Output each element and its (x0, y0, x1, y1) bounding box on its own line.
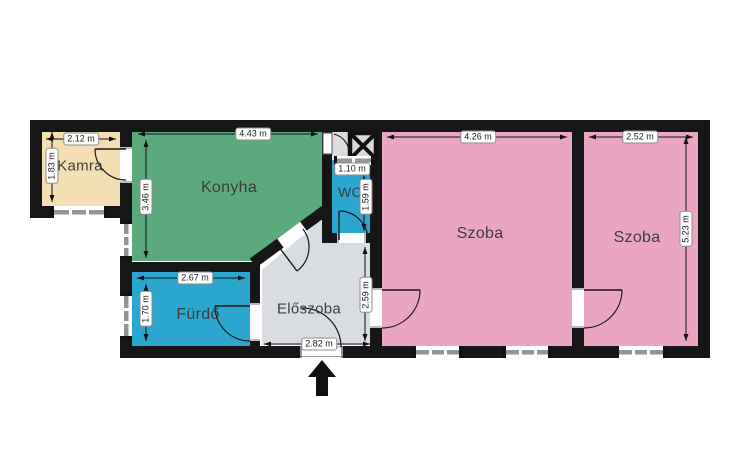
room-label-szoba2: Szoba (614, 229, 661, 247)
dim-wc-height: 1.59 m (360, 179, 373, 215)
wall-right (698, 120, 710, 358)
dim-szoba2-width: 2.52 m (622, 131, 658, 144)
dim-furdo-height: 1.70 m (140, 291, 153, 327)
dim-wc-width: 1.10 m (334, 163, 370, 176)
window (120, 220, 132, 260)
wall-kamra-top (30, 120, 132, 132)
dim-konyha-height: 3.46 m (140, 179, 153, 215)
room-label-szoba1: Szoba (457, 225, 504, 243)
window (615, 346, 667, 358)
floor-plan: Kamra Konyha WC Szoba Szoba Fürdő Előszo… (0, 0, 730, 472)
ventilation-shaft-icon (350, 133, 376, 159)
dim-kamra-width: 2.12 m (63, 133, 99, 146)
dim-szoba1-width: 4.26 m (460, 131, 496, 144)
wall-kamra-left (30, 120, 42, 218)
wall-top (120, 120, 710, 132)
dim-konyha-width: 4.43 m (235, 128, 271, 141)
room-label-kamra: Kamra (57, 158, 103, 175)
window (120, 292, 132, 340)
dim-eloszoba-height: 2.59 m (360, 277, 373, 313)
dim-furdo-width: 2.67 m (177, 272, 213, 285)
room-label-konyha: Konyha (201, 179, 257, 197)
room-label-wc: WC (338, 184, 362, 200)
dim-szoba2-height: 5.23 m (680, 211, 693, 247)
window (50, 206, 108, 218)
window (412, 346, 463, 358)
wall-furdo-top (132, 262, 260, 272)
room-label-furdo: Fürdő (176, 306, 219, 324)
dim-kamra-height: 1.83 m (46, 148, 59, 184)
room-label-eloszoba: Előszoba (277, 301, 341, 318)
entrance-arrow-icon (308, 360, 336, 396)
window (502, 346, 552, 358)
dim-entrance-width: 2.82 m (301, 338, 337, 351)
